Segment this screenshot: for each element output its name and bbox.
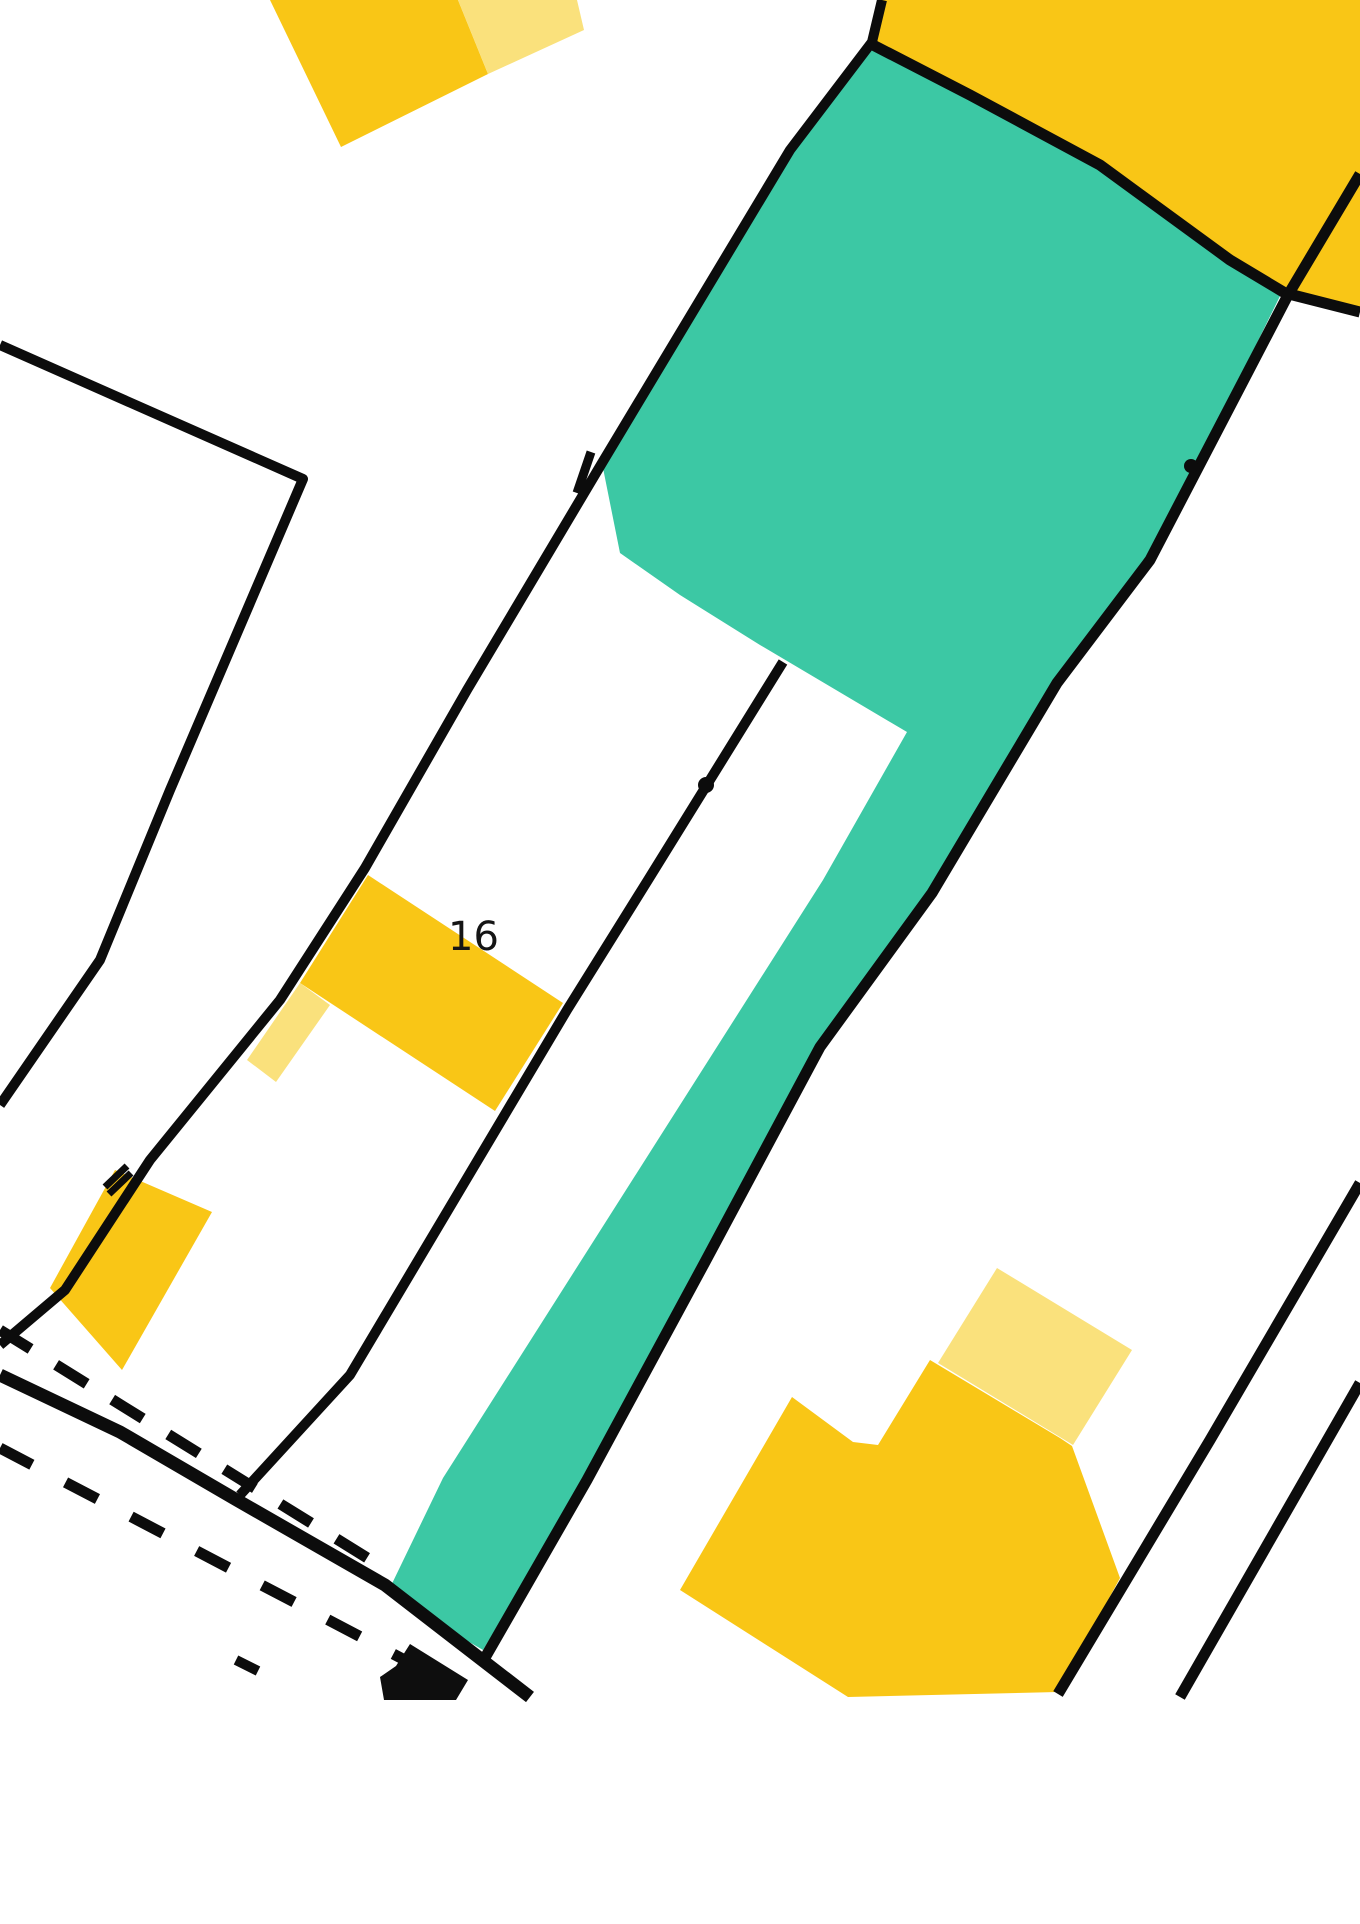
cadastral-map-viewport[interactable]: 16: [0, 0, 1360, 1924]
building-black-footprint: [380, 1644, 468, 1700]
boundary-point-dot-center: [698, 777, 714, 793]
map-fill-regions: [50, 0, 1360, 1697]
parcel-line-bottom-right-1: [1058, 1183, 1360, 1694]
dashed-boundary-upper: [0, 1330, 390, 1572]
map-overlay-regions: [380, 1644, 468, 1700]
map-canvas[interactable]: 16: [0, 0, 1360, 1924]
parcel-number-label: 16: [448, 914, 499, 960]
highlight-parcel-teal: [387, 42, 1282, 1650]
parcel-line-left-chevron: [0, 345, 303, 1105]
building-top-left-yellow: [270, 0, 488, 147]
parcel-line-bottom-right-2: [1180, 1383, 1360, 1697]
boundary-point-dot-right: [1184, 459, 1198, 473]
dash-fragment: [236, 1660, 258, 1671]
